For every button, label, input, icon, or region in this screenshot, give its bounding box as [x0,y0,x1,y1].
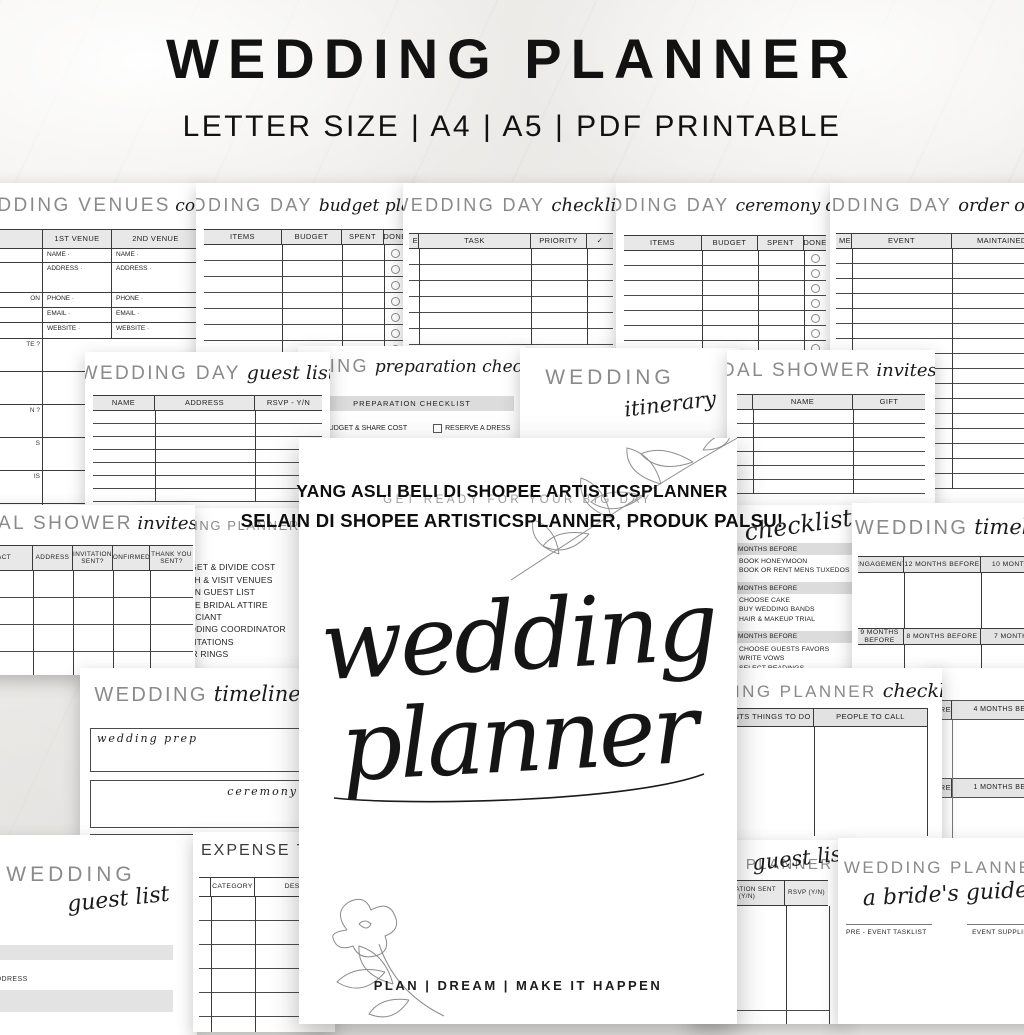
timeline-boxes-title: WEDDING [94,684,207,707]
venues-lower-fragment: S [0,438,42,470]
preparation-heading: WEDDING preparation checklist [298,356,526,377]
venues-title: WEDDING VENUES [0,195,171,216]
venue-field: PHONE · [42,293,111,307]
timeline-box-1-label: wedding prep [97,732,198,745]
venue-field: WEBSITE · [42,323,111,338]
months-bar-row: BEFORE 4 MONTHS BEFORE [928,700,1024,720]
budget-table-body [204,245,406,357]
ceremony-table-body [624,251,826,356]
ceremony-heading: WEDDING DAY ceremony decor [616,195,834,216]
months-section-label: MONTHS BEFORE [735,543,859,555]
day-guest-table-header: NAME ADDRESS RSVP - Y/N [93,395,322,411]
venues-lower-fragment: N ? [0,405,42,437]
order-script: order of events [958,195,1024,216]
card-ceremony-decor: WEDDING DAY ceremony decor ITEMS BUDGET … [616,183,834,359]
months-bars-divider [952,720,953,848]
ceremony-table-header: ITEMS BUDGET SPENT DONE [624,235,826,251]
card-guest-list-simple: WEDDING guest list ADDRESS [0,835,197,1035]
budget-table-header: ITEMS BUDGET SPENT DONE [204,229,406,245]
months-section-label: MONTHS BEFORE [735,582,859,594]
flower-sketch-icon [299,884,449,1024]
planner-checklist-script: checklist [883,680,942,702]
guest-simple-field-label: ADDRESS [0,976,28,983]
brides-guide-script: a bride's guide [838,876,1024,912]
flourish-swash-icon [329,768,709,808]
venues-lower-fragment: TE ? [0,339,42,371]
budget-script: budget planner [319,196,414,216]
venues-heading: WEDDING VENUES comparisons [0,195,205,217]
itinerary-title-wrap: WEDDING [520,366,700,390]
cover-footer: PLAN | DREAM | MAKE IT HAPPEN [299,978,737,993]
shower-invites-heading: BRIDAL SHOWER invites [727,360,935,382]
page-subtitle: LETTER SIZE | A4 | A5 | PDF PRINTABLE [0,110,1024,144]
day-checklist-table-header: E TASK PRIORITY ✓ [409,233,613,249]
planner-checklist-header: EVENTS THINGS TO DO PEOPLE TO CALL [714,708,928,727]
guest-simple-bar [0,990,173,1012]
timeline-boxes-heading: WEDDING timeline [80,682,315,707]
day-checklist-table-body [409,249,613,345]
checkbox-icon: RESERVE A DRESS [433,424,510,433]
watermark-line-2: SELAIN DI SHOPEE ARTISTICSPLANNER, PRODU… [0,510,1024,532]
brides-guide-right-label: EVENT SUPPLIERS [967,924,1024,936]
ceremony-title: WEDDING DAY [616,195,730,216]
planner-checklist-body [714,727,928,836]
card-budget-planner: WEDDING DAY budget planner ITEMS BUDGET … [196,183,414,369]
months-bar-row: BEFORE 1 MONTHS BEFORE [928,778,1024,798]
venue-field: EMAIL · [42,308,111,322]
card-day-checklist: WEDDING DAY checklist E TASK PRIORITY ✓ [403,183,621,351]
shower-tracker-table-body [0,571,193,675]
card-timeline-boxes: WEDDING timeline wedding prep ceremony [80,668,315,836]
card-brides-guide: WEDDING PLANNER a bride's guide PRE - EV… [838,838,1024,1024]
day-guest-script: guest list [247,362,330,384]
shower-invites-table-header: NAME GIFT [737,394,925,410]
done-circle-icon [804,251,826,356]
watermark-line-1: YANG ASLI BELI DI SHOPEE ARTISTICSPLANNE… [0,481,1024,502]
brides-guide-heading: WEDDING PLANNER [838,858,1024,878]
venue-field: ADDRESS · [42,263,111,292]
checkmark-icon: ✓ [587,234,613,248]
preparation-script: preparation checklist [375,357,526,377]
guest-simple-bar [0,945,173,960]
timeline-box-1: wedding prep [90,728,309,772]
timeline-boxes-script: timeline [214,682,301,706]
card-months-bars: BEFORE 4 MONTHS BEFORE BEFORE 1 MONTHS B… [928,668,1024,848]
budget-heading: WEDDING DAY budget planner [196,195,414,216]
preparation-bar: PREPARATION CHECKLIST [310,396,514,411]
itinerary-title: WEDDING [545,366,675,389]
guest-simple-script: guest list [66,882,171,918]
brides-guide-left-label: PRE - EVENT TASKLIST [846,924,932,936]
order-table-header: ME EVENT MAINTAINED BY [836,233,1024,249]
itinerary-script: itinerary [623,386,718,421]
shower-invites-title: BRIDAL SHOWER [727,360,872,381]
day-checklist-title: WEDDING DAY [403,195,545,216]
order-title: WEDDING DAY [830,195,952,216]
day-guest-title: WEDDING DAY [85,363,241,385]
timeline-box-2-label: ceremony [227,785,298,798]
day-guest-heading: WEDDING DAY guest list [85,362,330,385]
preparation-items: BUDGET & SHARE COST RESERVE A DRESS [312,424,518,433]
ceremony-script: ceremony decor [736,196,834,216]
timeline-box-2: ceremony [90,780,309,828]
day-checklist-heading: WEDDING DAY checklist [403,195,621,216]
months-checklist-body: MONTHS BEFORE BOOK HONEYMOON BOOK OR REN… [735,543,859,672]
months-section-label: MONTHS BEFORE [735,631,859,643]
day-checklist-script: checklist [551,195,621,216]
brides-guide-sections: PRE - EVENT TASKLIST EVENT SUPPLIERS [846,924,1024,936]
venues-col-1: 1ST VENUE [42,230,111,248]
venues-col-2: 2ND VENUE [111,230,199,248]
order-heading: WEDDING DAY order of events [830,195,1024,216]
clipped-column-fragment: E [409,234,419,248]
venue-field: NAME · [42,249,111,262]
shower-tracker-table-header: CONTACT ADDRESS INVITATION SENT? CONFIRM… [0,545,193,571]
guest-simple-title: WEDDING [6,863,136,886]
brides-guide-title: WEDDING PLANNER [844,858,1024,878]
clipped-column-fragment: ME [836,234,852,248]
page-title: WEDDING PLANNER [0,26,1024,91]
shower-invites-script: invites [876,360,935,381]
budget-title: WEDDING DAY [196,195,313,216]
venues-edge-fragment: ON [0,293,42,307]
